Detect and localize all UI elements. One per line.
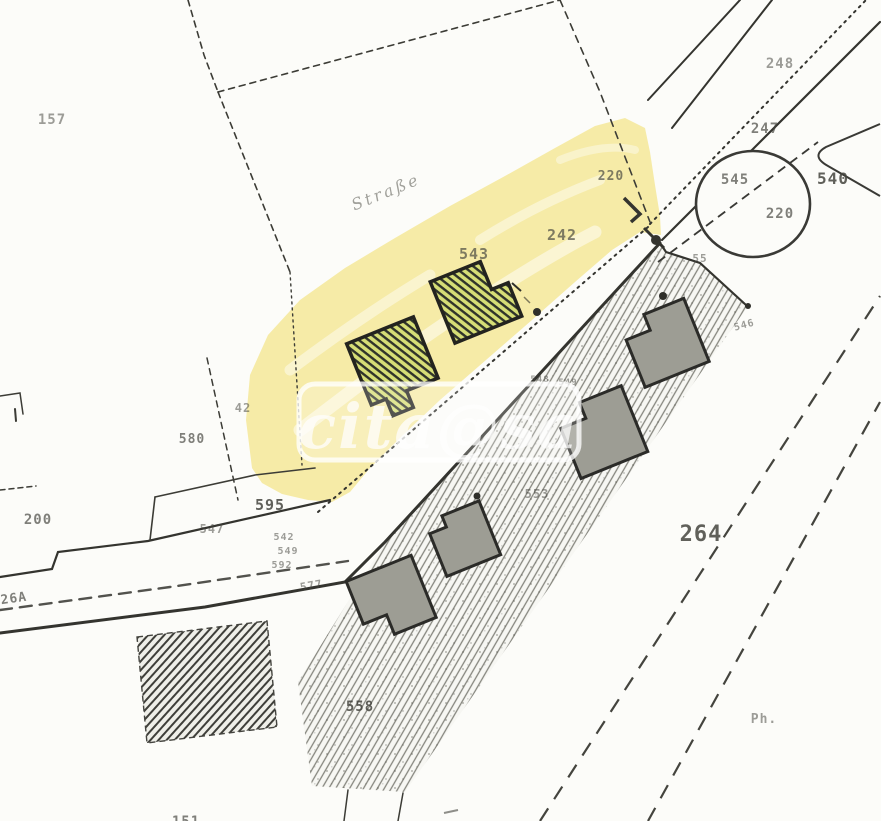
dense-hatched-block: [137, 621, 277, 743]
parcel-label-543: 543: [459, 245, 489, 263]
watermark: cita@sa: [298, 384, 579, 463]
parcel-label-264: 264: [680, 522, 723, 547]
parcel-label-248: 248: [766, 56, 794, 72]
parcel-label-151: 151: [172, 814, 200, 821]
parcel-label-42: 42: [235, 401, 251, 415]
watermark-text: cita@sa: [298, 390, 579, 463]
parcel-label-220-circle: 220: [766, 206, 794, 222]
parcel-label-549-small: 549: [277, 546, 298, 557]
parcel-label-247: 247: [751, 121, 779, 137]
parcel-label-592-small: 592: [271, 560, 292, 571]
parcel-label-Ph: Ph.: [751, 712, 777, 727]
parcel-label-558: 558: [346, 699, 374, 715]
parcel-label-200: 200: [24, 512, 52, 528]
parcel-label-55: 55: [692, 252, 707, 265]
parcel-label-545: 545: [721, 172, 749, 188]
parcel-label-553: 553: [525, 487, 550, 501]
parcel-label-540: 540: [817, 169, 849, 188]
parcel-label-220: 220: [598, 169, 624, 184]
map-canvas: 157 Straße 248 247 545 220 540 220 242 5…: [0, 0, 881, 821]
parcel-label-157: 157: [38, 112, 66, 128]
parcel-label-542-small: 542: [273, 532, 294, 543]
parcel-label-242: 242: [547, 226, 577, 244]
parcel-label-595: 595: [255, 496, 285, 514]
parcel-label-580: 580: [179, 432, 205, 447]
cadastral-map: 157 Straße 248 247 545 220 540 220 242 5…: [0, 0, 881, 821]
parcel-label-547: 547: [200, 522, 225, 536]
